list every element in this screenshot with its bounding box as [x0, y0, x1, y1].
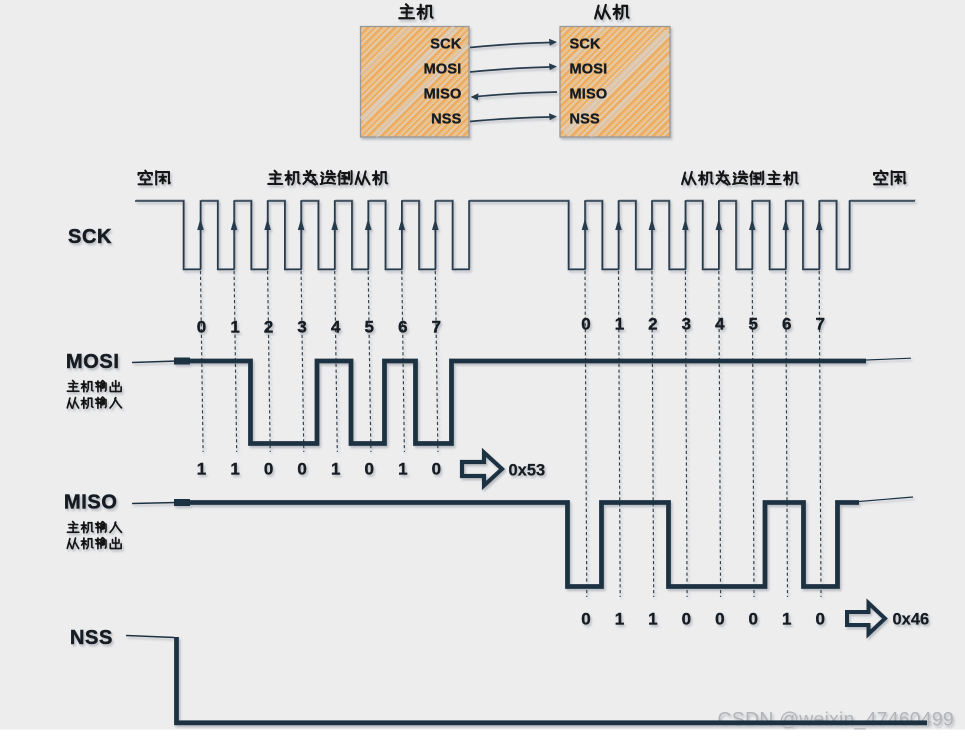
svg-text:4: 4 [331, 318, 341, 337]
svg-text:1: 1 [197, 460, 206, 479]
svg-text:MOSI: MOSI [570, 62, 608, 78]
svg-text:1: 1 [615, 610, 624, 629]
svg-text:2: 2 [648, 315, 657, 334]
svg-text:MOSI: MOSI [424, 62, 462, 78]
svg-text:3: 3 [297, 318, 306, 337]
svg-text:7: 7 [815, 315, 824, 334]
svg-text:NSS: NSS [431, 112, 462, 128]
svg-text:1: 1 [230, 318, 239, 337]
svg-text:0: 0 [581, 315, 590, 334]
svg-text:MISO: MISO [570, 87, 608, 103]
svg-text:SCK: SCK [430, 37, 462, 53]
svg-text:0: 0 [715, 610, 724, 629]
svg-text:2: 2 [264, 318, 273, 337]
svg-text:0: 0 [297, 460, 306, 479]
svg-text:4: 4 [715, 315, 725, 334]
svg-text:3: 3 [682, 315, 691, 334]
svg-text:0: 0 [581, 610, 590, 629]
svg-text:0x46: 0x46 [893, 611, 930, 629]
svg-text:1: 1 [782, 610, 791, 629]
svg-text:0: 0 [682, 610, 691, 629]
svg-text:0: 0 [197, 318, 206, 337]
svg-text:0: 0 [748, 610, 757, 629]
svg-text:0: 0 [815, 610, 824, 629]
svg-text:MOSI: MOSI [66, 351, 120, 373]
svg-text:0: 0 [264, 460, 273, 479]
svg-text:NSS: NSS [70, 627, 113, 649]
svg-text:1: 1 [615, 315, 624, 334]
svg-text:MISO: MISO [424, 87, 462, 103]
svg-text:5: 5 [748, 315, 757, 334]
svg-text:1: 1 [331, 460, 340, 479]
svg-text:NSS: NSS [570, 112, 601, 128]
svg-text:0: 0 [364, 460, 373, 479]
svg-text:SCK: SCK [68, 226, 112, 248]
svg-text:6: 6 [782, 315, 791, 334]
svg-text:SCK: SCK [570, 37, 602, 53]
svg-text:5: 5 [364, 318, 373, 337]
svg-text:1: 1 [648, 610, 657, 629]
svg-text:CSDN @weixin_47460499: CSDN @weixin_47460499 [718, 709, 954, 731]
svg-text:MISO: MISO [64, 492, 118, 514]
svg-text:7: 7 [432, 318, 441, 337]
svg-text:0x53: 0x53 [509, 462, 546, 480]
svg-text:1: 1 [230, 460, 239, 479]
svg-text:0: 0 [432, 460, 441, 479]
svg-text:1: 1 [398, 460, 407, 479]
svg-text:6: 6 [398, 318, 407, 337]
